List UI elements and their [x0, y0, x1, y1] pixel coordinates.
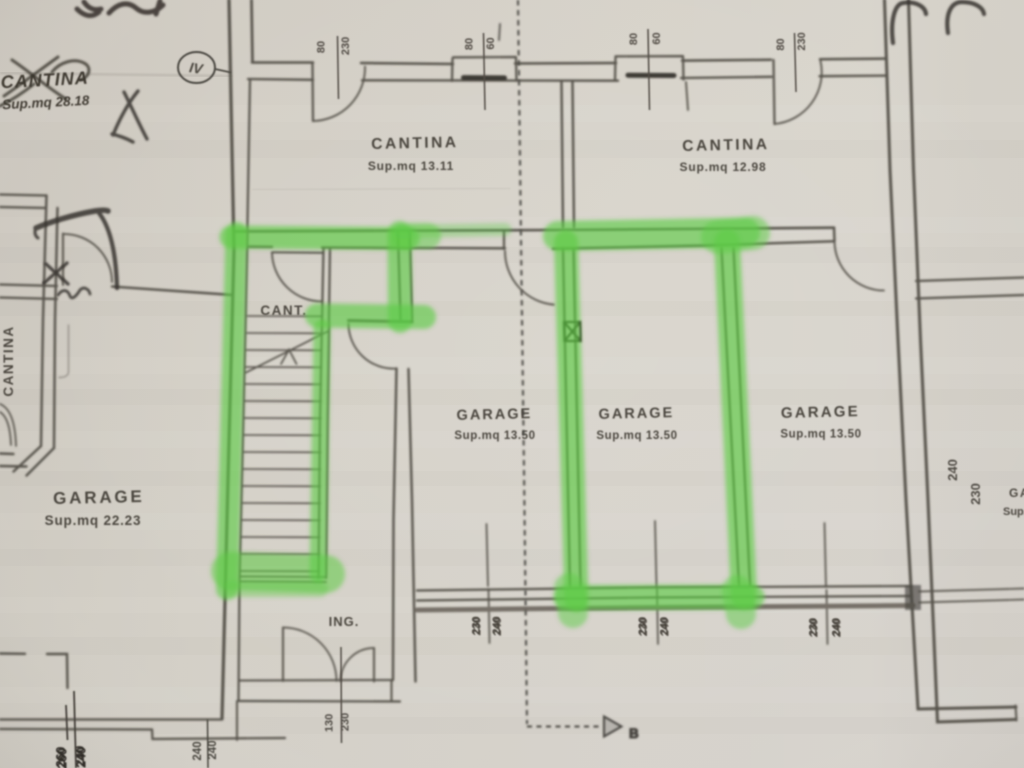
svg-text:Sup.m: Sup.m — [1003, 506, 1024, 518]
svg-text:130: 130 — [324, 714, 336, 732]
svg-text:Sup.mq 13.11: Sup.mq 13.11 — [368, 159, 454, 173]
svg-text:80: 80 — [464, 38, 476, 50]
svg-text:CANTINA: CANTINA — [371, 134, 459, 153]
svg-text:240: 240 — [492, 618, 504, 636]
svg-text:260: 260 — [56, 748, 70, 768]
svg-text:240: 240 — [832, 619, 844, 637]
svg-text:GARAGE: GARAGE — [598, 405, 674, 423]
svg-text:GARAGE: GARAGE — [781, 403, 860, 422]
svg-text:230: 230 — [638, 618, 650, 636]
svg-text:80: 80 — [628, 33, 640, 45]
svg-text:GAR: GAR — [1009, 486, 1024, 500]
svg-text:240: 240 — [945, 459, 960, 481]
svg-text:240: 240 — [192, 741, 204, 760]
svg-text:80: 80 — [316, 41, 328, 53]
svg-text:230: 230 — [472, 617, 484, 635]
svg-text:240: 240 — [207, 740, 219, 759]
svg-text:ING.: ING. — [329, 614, 360, 629]
svg-text:60: 60 — [485, 37, 497, 49]
svg-text:CANTINA: CANTINA — [1, 325, 16, 396]
svg-text:B: B — [629, 726, 639, 741]
svg-text:80: 80 — [775, 38, 787, 50]
svg-text:CANTINA: CANTINA — [682, 136, 770, 155]
svg-text:Sup.mq 13.50: Sup.mq 13.50 — [780, 429, 861, 441]
svg-text:Sup.mq 12.98: Sup.mq 12.98 — [680, 160, 767, 174]
svg-text:CANT.: CANT. — [260, 303, 307, 318]
svg-text:Sup.mq 13.50: Sup.mq 13.50 — [596, 430, 677, 442]
svg-text:GARAGE: GARAGE — [456, 406, 532, 424]
svg-text:230: 230 — [796, 32, 808, 50]
svg-text:240: 240 — [660, 618, 672, 636]
svg-text:GARAGE: GARAGE — [53, 487, 145, 508]
svg-text:60: 60 — [651, 32, 663, 44]
svg-text:230: 230 — [968, 483, 983, 505]
svg-text:Sup.mq 22.23: Sup.mq 22.23 — [45, 513, 142, 528]
svg-text:230: 230 — [340, 37, 352, 55]
svg-text:230: 230 — [809, 619, 821, 637]
